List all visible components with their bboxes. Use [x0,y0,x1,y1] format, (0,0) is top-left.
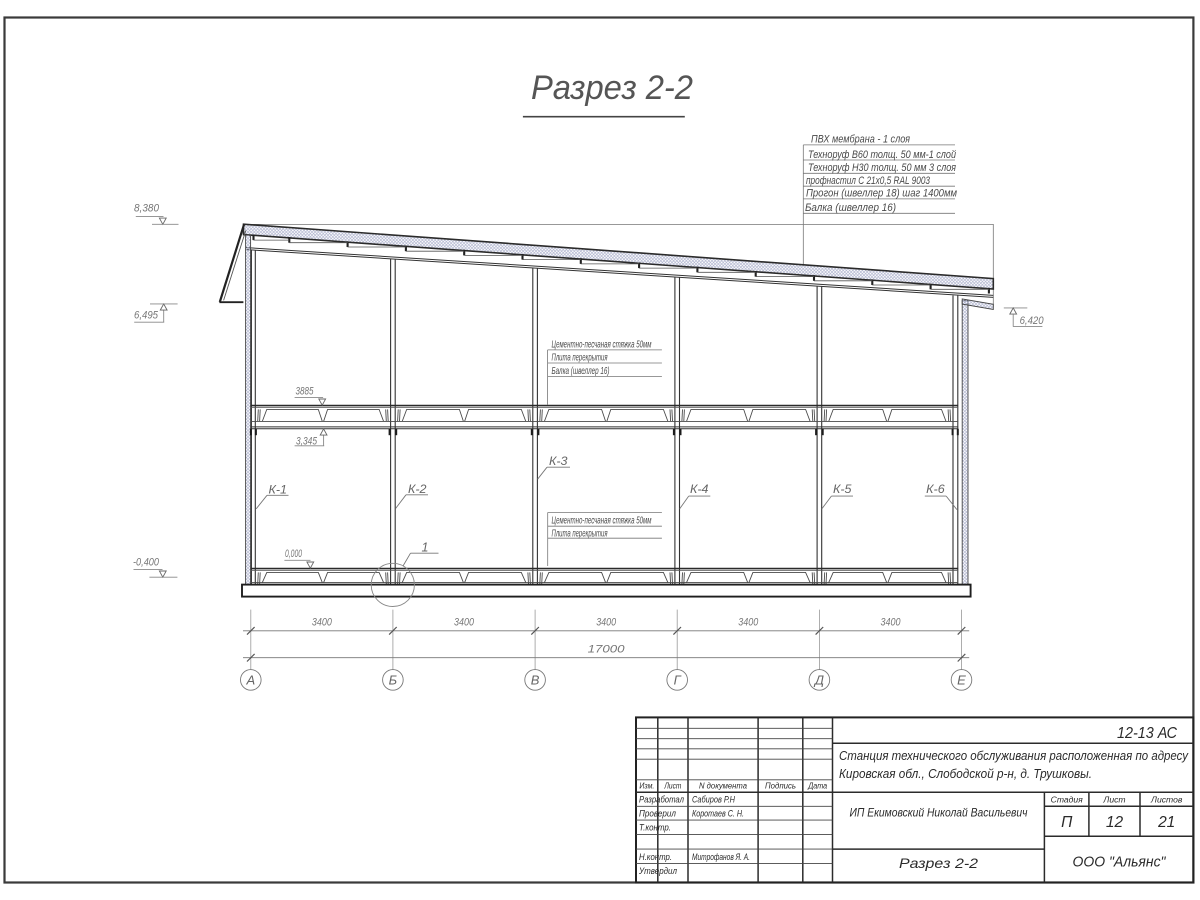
svg-text:Утвердил: Утвердил [638,866,677,876]
svg-text:К-1: К-1 [269,483,288,497]
svg-text:3885: 3885 [296,386,315,398]
svg-text:Кировская обл., Слободской р-н: Кировская обл., Слободской р-н, д. Трушк… [839,767,1092,781]
svg-text:Б: Б [389,673,398,688]
svg-text:Станция технического обслужива: Станция технического обслуживания распол… [839,749,1189,763]
svg-text:Цементно-песчаная стяжка 50мм: Цементно-песчаная стяжка 50мм [552,339,652,350]
svg-text:Разработал: Разработал [639,795,684,805]
svg-text:3400: 3400 [738,617,759,629]
svg-text:Листов: Листов [1150,795,1183,805]
svg-text:1: 1 [422,540,429,554]
svg-text:Коротаев С. Н.: Коротаев С. Н. [692,808,744,818]
svg-text:12-13 АС: 12-13 АС [1117,725,1178,742]
svg-text:ИП Екимовский Николай Васильев: ИП Екимовский Николай Васильевич [850,806,1028,820]
svg-text:Техноруф В60 толщ. 50 мм-1 сло: Техноруф В60 толщ. 50 мм-1 слой [808,149,956,161]
svg-text:Г: Г [674,673,682,688]
svg-text:21: 21 [1157,814,1175,831]
svg-text:Балка (швеллер 16): Балка (швеллер 16) [805,202,896,214]
svg-text:Т.контр.: Т.контр. [639,822,671,832]
svg-text:Проверил: Проверил [639,808,676,818]
svg-text:6,495: 6,495 [134,310,159,322]
svg-text:Цементно-песчаная стяжка 50мм: Цементно-песчаная стяжка 50мм [552,516,652,527]
svg-text:Е: Е [957,673,966,688]
svg-text:17000: 17000 [588,643,626,655]
svg-text:Митрофанов Я. А.: Митрофанов Я. А. [692,852,750,862]
svg-text:Дата: Дата [807,781,827,791]
svg-text:К-6: К-6 [926,482,945,496]
svg-text:Лист: Лист [664,781,682,791]
svg-text:8,380: 8,380 [134,203,160,215]
svg-text:6,420: 6,420 [1020,315,1045,327]
svg-text:ПВХ мембрана - 1 слоя: ПВХ мембрана - 1 слоя [811,134,910,146]
svg-text:Лист: Лист [1102,795,1125,805]
svg-text:Изм.: Изм. [639,781,654,791]
svg-text:Д: Д [813,673,824,688]
svg-text:-0,400: -0,400 [133,557,160,569]
svg-text:профнастил С 21х0,5 RAL 9003: профнастил С 21х0,5 RAL 9003 [806,175,930,187]
svg-text:В: В [531,673,540,688]
svg-text:Балка (швеллер 16): Балка (швеллер 16) [552,366,610,377]
svg-text:Плита перекрытия: Плита перекрытия [552,352,608,363]
svg-text:К-3: К-3 [549,454,568,468]
svg-text:К-2: К-2 [408,482,427,496]
svg-text:0,000: 0,000 [285,548,303,560]
svg-text:Прогон (швеллер 18) шаг 1400мм: Прогон (швеллер 18) шаг 1400мм [806,188,958,200]
svg-text:Разрез 2-2: Разрез 2-2 [899,856,978,871]
svg-text:3400: 3400 [881,617,902,629]
svg-text:Стадия: Стадия [1051,795,1084,805]
svg-text:К-5: К-5 [833,482,852,496]
svg-text:3400: 3400 [454,617,475,629]
svg-text:12: 12 [1106,814,1124,831]
svg-text:К-4: К-4 [690,482,709,496]
svg-text:Техноруф Н30 толщ. 50 мм 3 сло: Техноруф Н30 толщ. 50 мм 3 слоя [808,162,956,174]
svg-text:Н.контр.: Н.контр. [639,852,672,862]
svg-text:ООО "Альянс": ООО "Альянс" [1073,855,1167,871]
svg-text:3400: 3400 [596,617,617,629]
svg-text:П: П [1061,814,1073,831]
svg-text:3400: 3400 [312,617,333,629]
svg-text:А: А [245,673,255,688]
svg-text:Подпись: Подпись [765,781,796,791]
svg-text:Сабиров Р.Н: Сабиров Р.Н [692,795,736,805]
svg-text:N документа: N документа [699,781,747,791]
svg-text:Плита перекрытия: Плита перекрытия [552,528,608,539]
svg-text:Разрез 2-2: Разрез 2-2 [531,69,693,107]
